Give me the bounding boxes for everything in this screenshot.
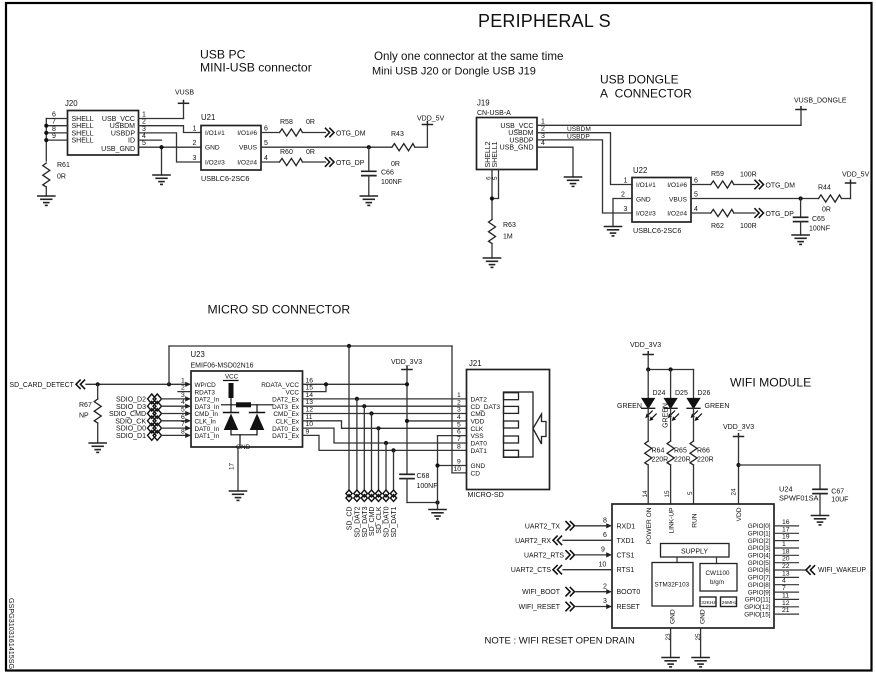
svg-text:7: 7 bbox=[782, 585, 786, 592]
svg-text:GND: GND bbox=[670, 609, 677, 624]
svg-text:VDD_3V3: VDD_3V3 bbox=[630, 342, 661, 349]
svg-text:U24: U24 bbox=[779, 485, 793, 494]
svg-text:1: 1 bbox=[142, 112, 146, 119]
svg-text:VDD_3V3: VDD_3V3 bbox=[391, 359, 422, 366]
svg-text:VUSB: VUSB bbox=[175, 90, 194, 97]
svg-text:USB_GND: USB_GND bbox=[500, 145, 534, 152]
svg-text:1: 1 bbox=[181, 377, 185, 384]
svg-text:I/O1#1: I/O1#1 bbox=[205, 130, 225, 137]
svg-text:19: 19 bbox=[782, 534, 790, 541]
svg-text:UART2_CTS: UART2_CTS bbox=[511, 567, 551, 574]
svg-text:10UF: 10UF bbox=[831, 497, 848, 504]
svg-text:SD_CLK: SD_CLK bbox=[376, 506, 383, 534]
svg-text:DAT3_In: DAT3_In bbox=[195, 404, 220, 411]
svg-text:VCC: VCC bbox=[286, 389, 300, 396]
svg-text:2: 2 bbox=[142, 119, 146, 126]
svg-text:R61: R61 bbox=[57, 162, 70, 169]
svg-text:USB DONGLE: USB DONGLE bbox=[600, 73, 679, 87]
svg-text:23: 23 bbox=[665, 633, 672, 641]
svg-text:VBUS: VBUS bbox=[669, 197, 688, 204]
svg-text:CD_DAT3: CD_DAT3 bbox=[471, 404, 501, 411]
svg-text:J20: J20 bbox=[65, 99, 78, 108]
svg-text:GREEN: GREEN bbox=[617, 403, 642, 410]
svg-text:USB_VCC: USB_VCC bbox=[102, 116, 135, 123]
svg-text:D25: D25 bbox=[675, 390, 688, 397]
svg-text:CN-USB-A: CN-USB-A bbox=[477, 110, 511, 117]
svg-text:SDIO_D0: SDIO_D0 bbox=[116, 426, 146, 433]
svg-text:R59: R59 bbox=[711, 171, 724, 178]
svg-text:DAT0: DAT0 bbox=[471, 441, 488, 448]
svg-text:7: 7 bbox=[181, 421, 185, 428]
svg-text:USBLC6-2SC6: USBLC6-2SC6 bbox=[201, 174, 249, 183]
svg-text:I/O2#3: I/O2#3 bbox=[205, 160, 225, 167]
svg-text:GPIO[4]: GPIO[4] bbox=[748, 553, 771, 560]
svg-text:USBLC6-2SC6: USBLC6-2SC6 bbox=[633, 226, 681, 235]
svg-text:6: 6 bbox=[603, 532, 607, 539]
svg-text:220R: 220R bbox=[652, 457, 669, 464]
svg-text:12: 12 bbox=[782, 600, 790, 607]
svg-text:GPIO[1]: GPIO[1] bbox=[748, 531, 771, 538]
svg-text:OTG_DP: OTG_DP bbox=[336, 160, 365, 167]
svg-text:6: 6 bbox=[181, 414, 185, 421]
svg-text:VUSB_DONGLE: VUSB_DONGLE bbox=[794, 97, 847, 104]
svg-text:5: 5 bbox=[142, 140, 146, 147]
svg-text:9: 9 bbox=[306, 428, 310, 435]
svg-text:SHELL2: SHELL2 bbox=[485, 141, 492, 167]
svg-text:100NF: 100NF bbox=[809, 226, 830, 233]
svg-text:C68: C68 bbox=[417, 473, 430, 480]
svg-text:J21: J21 bbox=[469, 359, 482, 368]
svg-text:11: 11 bbox=[782, 592, 789, 599]
svg-text:USBDP: USBDP bbox=[509, 137, 533, 144]
svg-text:VDD: VDD bbox=[736, 507, 743, 521]
svg-text:GPIO[7]: GPIO[7] bbox=[748, 575, 771, 582]
svg-text:WP/CD: WP/CD bbox=[195, 382, 217, 389]
svg-text:SDIO_D2: SDIO_D2 bbox=[116, 397, 146, 404]
svg-text:4: 4 bbox=[142, 133, 146, 140]
svg-text:DAT3_Ex: DAT3_Ex bbox=[272, 404, 300, 411]
svg-text:7: 7 bbox=[52, 119, 56, 126]
svg-text:5: 5 bbox=[687, 491, 694, 495]
svg-text:C66: C66 bbox=[381, 170, 394, 177]
svg-text:C65: C65 bbox=[812, 216, 825, 223]
svg-text:R66: R66 bbox=[697, 448, 710, 455]
svg-text:2: 2 bbox=[457, 399, 461, 406]
svg-text:SD_CMD: SD_CMD bbox=[369, 507, 376, 537]
svg-text:GPIO[8]: GPIO[8] bbox=[748, 582, 771, 589]
svg-text:DAT1: DAT1 bbox=[471, 448, 488, 455]
svg-text:17: 17 bbox=[229, 462, 236, 470]
svg-text:SD_CD: SD_CD bbox=[347, 507, 354, 531]
svg-text:USBDM: USBDM bbox=[508, 130, 533, 137]
svg-text:RUN: RUN bbox=[692, 513, 699, 528]
svg-text:R67: R67 bbox=[79, 402, 92, 409]
svg-text:I/O2#4: I/O2#4 bbox=[667, 211, 687, 218]
svg-text:2: 2 bbox=[541, 126, 545, 133]
svg-text:CLK_In: CLK_In bbox=[195, 419, 217, 426]
svg-text:0R: 0R bbox=[391, 161, 400, 168]
svg-text:21: 21 bbox=[782, 607, 790, 614]
svg-text:A CONNECTOR: A CONNECTOR bbox=[600, 87, 692, 101]
svg-text:STM32F103: STM32F103 bbox=[655, 582, 690, 589]
svg-text:SDIO_D1: SDIO_D1 bbox=[116, 433, 146, 440]
svg-text:TXD1: TXD1 bbox=[617, 538, 635, 545]
svg-text:USBDM: USBDM bbox=[110, 123, 135, 130]
svg-text:6: 6 bbox=[52, 112, 56, 119]
svg-text:17: 17 bbox=[782, 526, 790, 533]
svg-text:WIFI_BOOT: WIFI_BOOT bbox=[522, 589, 561, 596]
svg-text:220R: 220R bbox=[674, 457, 691, 464]
svg-text:24: 24 bbox=[730, 488, 737, 496]
svg-text:CTS1: CTS1 bbox=[617, 552, 635, 559]
svg-text:14: 14 bbox=[642, 490, 649, 498]
svg-text:4: 4 bbox=[541, 140, 545, 147]
svg-text:VSS: VSS bbox=[471, 433, 485, 440]
svg-text:8: 8 bbox=[52, 126, 56, 133]
svg-text:R43: R43 bbox=[391, 131, 404, 138]
svg-text:D24: D24 bbox=[653, 390, 666, 397]
svg-text:DAT1_In: DAT1_In bbox=[195, 433, 220, 440]
svg-text:Only one connector at the same: Only one connector at the same time bbox=[374, 50, 563, 63]
svg-text:GREEN: GREEN bbox=[705, 403, 730, 410]
svg-text:26MHz: 26MHz bbox=[722, 600, 738, 606]
svg-text:SHELL: SHELL bbox=[72, 138, 94, 145]
svg-text:100NF: 100NF bbox=[381, 179, 402, 186]
svg-text:RXD1: RXD1 bbox=[617, 523, 636, 530]
svg-text:5: 5 bbox=[264, 140, 268, 147]
svg-text:UART2_RTS: UART2_RTS bbox=[524, 552, 564, 559]
svg-text:100R: 100R bbox=[740, 172, 757, 179]
svg-text:1: 1 bbox=[782, 541, 786, 548]
svg-text:CD: CD bbox=[471, 470, 481, 477]
svg-text:20: 20 bbox=[782, 556, 790, 563]
svg-text:GPIO[11]: GPIO[11] bbox=[745, 597, 771, 604]
svg-text:SD_DAT2: SD_DAT2 bbox=[355, 506, 362, 537]
svg-text:220R: 220R bbox=[697, 457, 714, 464]
svg-text:U23: U23 bbox=[191, 350, 205, 359]
svg-text:DAT2_Ex: DAT2_Ex bbox=[272, 397, 300, 404]
svg-text:USB_GND: USB_GND bbox=[101, 146, 135, 153]
svg-text:RESET: RESET bbox=[617, 604, 641, 611]
svg-text:SHELL: SHELL bbox=[72, 123, 94, 130]
svg-text:8: 8 bbox=[457, 443, 461, 450]
svg-text:Mini USB J20 or Dongle USB J19: Mini USB J20 or Dongle USB J19 bbox=[372, 66, 536, 78]
svg-text:SD_DAT0: SD_DAT0 bbox=[384, 506, 391, 537]
svg-text:ID: ID bbox=[128, 138, 135, 145]
svg-text:LINK-UP: LINK-UP bbox=[669, 507, 676, 534]
svg-text:VDD: VDD bbox=[471, 418, 485, 425]
svg-text:CMD: CMD bbox=[471, 411, 486, 418]
svg-text:10: 10 bbox=[454, 466, 462, 473]
svg-text:0R: 0R bbox=[57, 174, 66, 181]
svg-text:CMD_Ex: CMD_Ex bbox=[273, 411, 299, 418]
svg-text:GPIO[0]: GPIO[0] bbox=[748, 523, 771, 530]
svg-text:3: 3 bbox=[142, 126, 146, 133]
svg-text:b/g/n: b/g/n bbox=[710, 579, 725, 586]
svg-text:GSPG3103161415SG: GSPG3103161415SG bbox=[7, 598, 16, 670]
svg-text:13: 13 bbox=[782, 570, 790, 577]
svg-text:GND: GND bbox=[636, 197, 651, 204]
svg-text:I/O2#4: I/O2#4 bbox=[237, 160, 257, 167]
svg-text:RTS1: RTS1 bbox=[617, 567, 635, 574]
svg-text:R64: R64 bbox=[652, 448, 665, 455]
svg-text:100NF: 100NF bbox=[417, 483, 438, 490]
svg-text:PERIPHERAL S: PERIPHERAL S bbox=[478, 11, 611, 31]
svg-text:4: 4 bbox=[181, 399, 185, 406]
svg-text:R63: R63 bbox=[503, 222, 516, 229]
svg-text:GPIO[6]: GPIO[6] bbox=[748, 567, 771, 574]
svg-text:GREEN: GREEN bbox=[663, 403, 670, 428]
svg-text:0R: 0R bbox=[306, 119, 315, 126]
svg-text:MINI-USB connector: MINI-USB connector bbox=[200, 61, 312, 75]
svg-text:VBUS: VBUS bbox=[239, 145, 258, 152]
svg-text:SPWF01SA: SPWF01SA bbox=[779, 494, 818, 503]
svg-text:U22: U22 bbox=[633, 166, 647, 175]
svg-text:NP: NP bbox=[79, 413, 89, 420]
svg-text:16: 16 bbox=[306, 377, 314, 384]
svg-text:5: 5 bbox=[492, 176, 499, 180]
svg-text:6: 6 bbox=[694, 178, 698, 185]
svg-text:1: 1 bbox=[624, 178, 628, 185]
svg-text:R60: R60 bbox=[280, 149, 293, 156]
svg-text:CLK_Ex: CLK_Ex bbox=[276, 419, 300, 426]
svg-text:SDIO_D3: SDIO_D3 bbox=[116, 404, 146, 411]
svg-text:GPIO[3]: GPIO[3] bbox=[748, 545, 771, 552]
svg-text:CW1100: CW1100 bbox=[706, 570, 731, 577]
svg-text:NOTE : WIFI RESET OPEN DRAIN: NOTE : WIFI RESET OPEN DRAIN bbox=[485, 636, 635, 647]
svg-text:SHELL: SHELL bbox=[72, 116, 94, 123]
svg-text:I/O1#6: I/O1#6 bbox=[237, 130, 257, 137]
svg-text:DAT2_In: DAT2_In bbox=[195, 397, 220, 404]
svg-text:OTG_DP: OTG_DP bbox=[766, 211, 795, 218]
svg-text:GPIO[15]: GPIO[15] bbox=[744, 611, 770, 618]
svg-text:DAT0_Ex: DAT0_Ex bbox=[272, 426, 300, 433]
svg-text:8: 8 bbox=[181, 428, 185, 435]
svg-text:UART2_RX: UART2_RX bbox=[515, 538, 551, 545]
svg-text:GPIO[12]: GPIO[12] bbox=[744, 604, 770, 611]
svg-text:J19: J19 bbox=[477, 99, 490, 108]
svg-text:14: 14 bbox=[306, 392, 314, 399]
svg-text:R62: R62 bbox=[711, 223, 724, 230]
svg-text:SD_DAT1: SD_DAT1 bbox=[391, 506, 398, 537]
svg-text:R44: R44 bbox=[818, 185, 831, 192]
svg-text:SD_DAT3: SD_DAT3 bbox=[362, 506, 369, 537]
svg-text:2: 2 bbox=[621, 192, 625, 199]
svg-text:15: 15 bbox=[664, 490, 671, 498]
svg-text:1: 1 bbox=[457, 392, 461, 399]
svg-text:GPIO[5]: GPIO[5] bbox=[748, 560, 771, 567]
svg-text:3: 3 bbox=[457, 407, 461, 414]
svg-text:SUPPLY: SUPPLY bbox=[681, 549, 708, 556]
svg-text:4: 4 bbox=[457, 414, 461, 421]
svg-text:100R: 100R bbox=[740, 223, 757, 230]
svg-text:12: 12 bbox=[306, 407, 314, 414]
svg-text:VDD_5V: VDD_5V bbox=[417, 116, 445, 123]
svg-text:1M: 1M bbox=[503, 234, 513, 241]
svg-text:RDAT3: RDAT3 bbox=[195, 389, 216, 396]
svg-text:2: 2 bbox=[193, 140, 197, 147]
svg-text:4: 4 bbox=[782, 578, 786, 585]
svg-text:SHELL1: SHELL1 bbox=[492, 141, 499, 167]
svg-text:POWER ON: POWER ON bbox=[646, 507, 653, 544]
svg-text:11: 11 bbox=[306, 414, 313, 421]
svg-text:CMD_In: CMD_In bbox=[195, 411, 219, 418]
svg-text:3: 3 bbox=[181, 392, 185, 399]
svg-text:16: 16 bbox=[782, 519, 790, 526]
svg-text:USBDM: USBDM bbox=[567, 126, 591, 133]
svg-text:22: 22 bbox=[782, 563, 790, 570]
svg-text:VDD_3V3: VDD_3V3 bbox=[723, 424, 754, 431]
svg-text:GPIO[2]: GPIO[2] bbox=[748, 538, 771, 545]
svg-text:GND: GND bbox=[471, 463, 486, 470]
svg-text:DAT2: DAT2 bbox=[471, 396, 488, 403]
svg-text:I/O1#6: I/O1#6 bbox=[667, 182, 687, 189]
svg-text:10: 10 bbox=[306, 421, 314, 428]
svg-text:SD_CARD_DETECT: SD_CARD_DETECT bbox=[10, 382, 75, 389]
svg-text:2: 2 bbox=[181, 385, 185, 392]
svg-text:GND: GND bbox=[205, 145, 220, 152]
svg-text:MICRO-SD: MICRO-SD bbox=[468, 490, 504, 499]
svg-text:6: 6 bbox=[457, 429, 461, 436]
svg-text:0R: 0R bbox=[306, 149, 315, 156]
svg-text:SHELL: SHELL bbox=[72, 130, 94, 137]
svg-text:0R: 0R bbox=[822, 207, 831, 214]
svg-text:9: 9 bbox=[601, 547, 605, 554]
svg-text:RDATA_VCC: RDATA_VCC bbox=[261, 382, 299, 389]
svg-text:OTG_DM: OTG_DM bbox=[336, 130, 366, 137]
svg-text:WIFI MODULE: WIFI MODULE bbox=[730, 376, 811, 390]
svg-text:DAT0_In: DAT0_In bbox=[195, 426, 220, 433]
svg-text:MICRO SD CONNECTOR: MICRO SD CONNECTOR bbox=[208, 303, 351, 317]
svg-text:5: 5 bbox=[457, 421, 461, 428]
svg-text:WIFI_RESET: WIFI_RESET bbox=[519, 604, 561, 611]
svg-text:USBDP: USBDP bbox=[111, 130, 135, 137]
svg-text:15: 15 bbox=[306, 385, 314, 392]
svg-text:UART2_TX: UART2_TX bbox=[525, 523, 561, 530]
svg-text:4: 4 bbox=[264, 155, 268, 162]
svg-text:I/O1#1: I/O1#1 bbox=[636, 182, 656, 189]
svg-text:WIFI_WAKEUP: WIFI_WAKEUP bbox=[818, 567, 866, 574]
svg-text:EMIF06-MSD02N16: EMIF06-MSD02N16 bbox=[191, 363, 254, 370]
svg-text:DAT1_Ex: DAT1_Ex bbox=[272, 433, 300, 440]
svg-text:3: 3 bbox=[193, 155, 197, 162]
svg-text:VDD_5V: VDD_5V bbox=[842, 172, 870, 179]
svg-text:USB_VCC: USB_VCC bbox=[500, 123, 533, 130]
svg-text:9: 9 bbox=[457, 459, 461, 466]
svg-text:6: 6 bbox=[264, 126, 268, 133]
svg-text:25: 25 bbox=[695, 633, 702, 641]
svg-text:5: 5 bbox=[181, 407, 185, 414]
svg-text:10: 10 bbox=[599, 561, 607, 568]
svg-text:3: 3 bbox=[541, 133, 545, 140]
svg-text:13: 13 bbox=[306, 399, 314, 406]
svg-text:5: 5 bbox=[694, 192, 698, 199]
svg-text:4: 4 bbox=[694, 206, 698, 213]
svg-text:GPIO[9]: GPIO[9] bbox=[748, 589, 771, 596]
svg-text:SDIO_CK: SDIO_CK bbox=[115, 418, 146, 425]
svg-text:CLK: CLK bbox=[471, 426, 484, 433]
svg-text:USB PC: USB PC bbox=[200, 48, 246, 62]
svg-text:GND: GND bbox=[700, 609, 707, 624]
svg-text:VCC: VCC bbox=[225, 374, 239, 381]
svg-text:1: 1 bbox=[541, 118, 545, 125]
svg-text:32KHz: 32KHz bbox=[701, 600, 716, 606]
svg-text:18: 18 bbox=[782, 548, 790, 555]
svg-text:R58: R58 bbox=[280, 119, 293, 126]
svg-text:7: 7 bbox=[457, 436, 461, 443]
svg-text:R65: R65 bbox=[674, 448, 687, 455]
svg-text:U21: U21 bbox=[201, 113, 215, 122]
svg-text:USBDP: USBDP bbox=[567, 134, 590, 141]
svg-text:9: 9 bbox=[52, 133, 56, 140]
svg-text:I/O2#3: I/O2#3 bbox=[636, 211, 656, 218]
svg-text:BOOT0: BOOT0 bbox=[617, 589, 641, 596]
svg-text:1: 1 bbox=[193, 126, 197, 133]
svg-text:D26: D26 bbox=[698, 390, 711, 397]
svg-text:C67: C67 bbox=[831, 489, 844, 496]
svg-text:3: 3 bbox=[624, 206, 628, 213]
svg-text:SDIO_CMD: SDIO_CMD bbox=[109, 411, 146, 418]
svg-text:OTG_DM: OTG_DM bbox=[766, 182, 796, 189]
